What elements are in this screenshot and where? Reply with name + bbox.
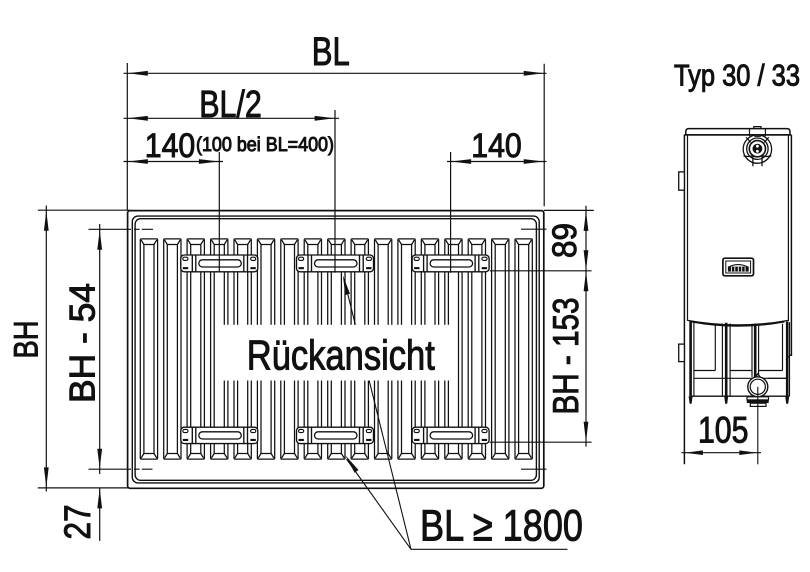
svg-text:Typ 30 / 33: Typ 30 / 33	[674, 59, 800, 92]
svg-text:89: 89	[546, 223, 584, 258]
svg-text:140: 140	[471, 127, 522, 165]
svg-text:BL: BL	[312, 30, 350, 74]
svg-text:105: 105	[698, 410, 749, 451]
svg-text:27: 27	[57, 505, 98, 540]
svg-text:BH - 54: BH - 54	[62, 283, 103, 403]
svg-text:BH - 153: BH - 153	[545, 298, 586, 415]
svg-text:BL ≥ 1800: BL ≥ 1800	[420, 502, 583, 551]
svg-text:BL/2: BL/2	[199, 84, 262, 126]
svg-text:BH: BH	[8, 321, 46, 359]
svg-text:(100 bei BL=400): (100 bei BL=400)	[196, 134, 334, 156]
svg-text:140: 140	[145, 127, 196, 165]
svg-text:Rückansicht: Rückansicht	[247, 332, 435, 379]
